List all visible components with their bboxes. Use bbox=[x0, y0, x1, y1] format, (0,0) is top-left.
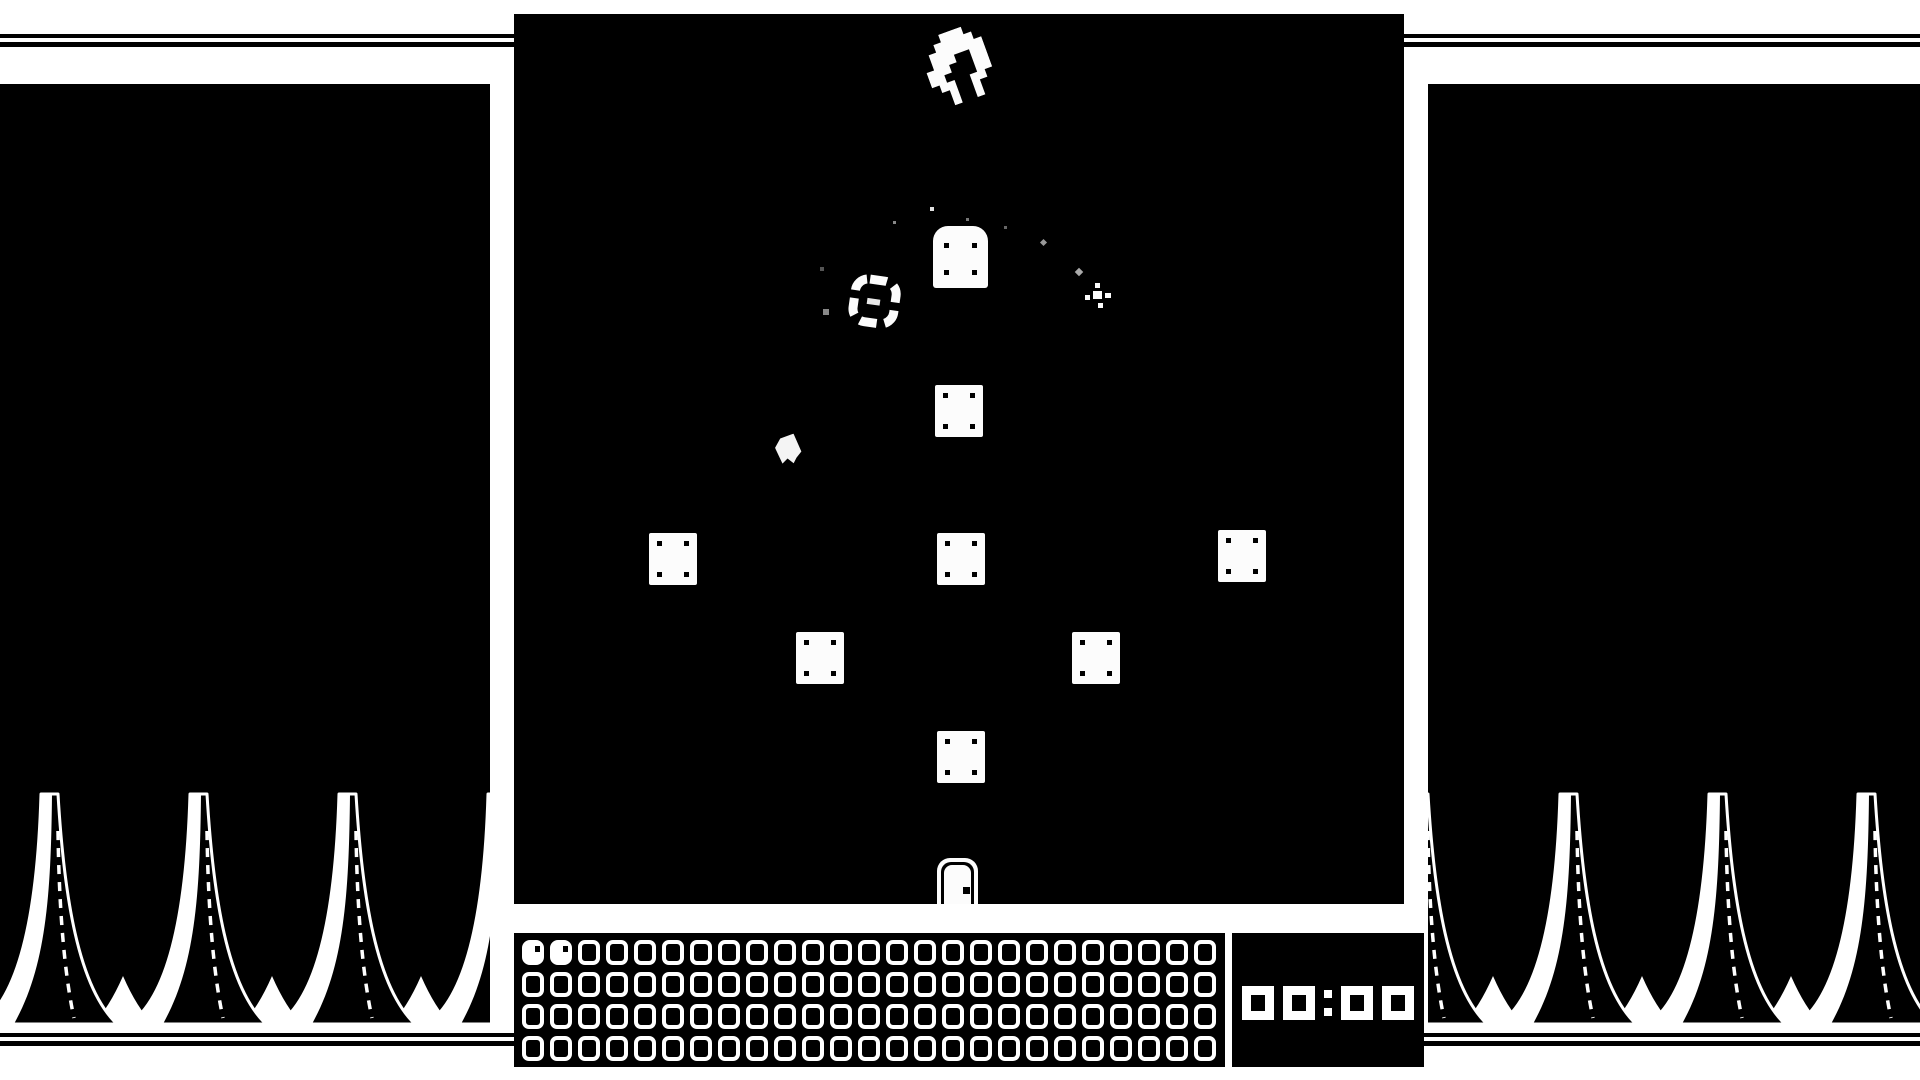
collectible-slot-empty bbox=[1194, 940, 1216, 965]
collectible-slot-empty bbox=[942, 1004, 964, 1029]
collectible-slot-empty bbox=[802, 1036, 824, 1061]
collectible-slot-empty bbox=[634, 1004, 656, 1029]
collectible-slot-empty bbox=[1026, 1036, 1048, 1061]
spike-mountains-right bbox=[1428, 786, 1920, 1032]
collectible-slot-empty bbox=[718, 1036, 740, 1061]
collectible-slot-empty bbox=[1194, 972, 1216, 997]
collectible-slot-empty bbox=[998, 1004, 1020, 1029]
collectible-slot-empty bbox=[606, 1036, 628, 1061]
collectible-slot-empty bbox=[550, 972, 572, 997]
collectible-slot-empty bbox=[914, 1004, 936, 1029]
collectible-slot-empty bbox=[522, 972, 544, 997]
collectible-slot-empty bbox=[914, 972, 936, 997]
sparkle-icon bbox=[1085, 283, 1113, 311]
debris-particle bbox=[820, 267, 824, 271]
collectible-slot-empty bbox=[578, 1036, 600, 1061]
timer-digit-0 bbox=[1341, 986, 1373, 1020]
collectible-slot-empty bbox=[830, 1004, 852, 1029]
timer-digit-0 bbox=[1283, 986, 1315, 1020]
collectible-slot-empty bbox=[1054, 940, 1076, 965]
collectible-slot-empty bbox=[690, 1036, 712, 1061]
collectible-slot-empty bbox=[662, 972, 684, 997]
plate-block bbox=[1072, 632, 1120, 684]
collectible-slot-empty bbox=[914, 1036, 936, 1061]
collectible-slot-empty bbox=[550, 1036, 572, 1061]
collectible-slot-empty bbox=[578, 940, 600, 965]
collectible-slot-empty bbox=[662, 1004, 684, 1029]
collectible-slot-empty bbox=[802, 1004, 824, 1029]
collectible-slot-empty bbox=[634, 972, 656, 997]
collectible-slot-empty bbox=[1194, 1036, 1216, 1061]
collectible-slot-empty bbox=[1026, 940, 1048, 965]
collectible-slot-empty bbox=[1082, 940, 1104, 965]
collectible-slot-empty bbox=[522, 1036, 544, 1061]
collectible-slot-empty bbox=[1026, 1004, 1048, 1029]
collectible-slot-empty bbox=[802, 972, 824, 997]
collectible-slot-empty bbox=[522, 1004, 544, 1029]
collectible-slot-empty bbox=[1166, 1004, 1188, 1029]
collectible-slot-empty bbox=[886, 972, 908, 997]
collectible-slot-empty bbox=[858, 1004, 880, 1029]
collectible-slot-empty bbox=[830, 940, 852, 965]
timer-digit-0 bbox=[1382, 986, 1414, 1020]
right-border-panel bbox=[1428, 84, 1920, 1032]
collectible-slot-empty bbox=[830, 972, 852, 997]
collectible-slot-empty bbox=[830, 1036, 852, 1061]
collectible-slot-empty bbox=[746, 940, 768, 965]
collectible-slot-empty bbox=[1166, 972, 1188, 997]
collectible-slot-empty bbox=[606, 940, 628, 965]
collectible-slot-empty bbox=[858, 940, 880, 965]
collectible-slot-empty bbox=[774, 940, 796, 965]
collectible-slot-empty bbox=[1054, 972, 1076, 997]
collectible-slot-empty bbox=[998, 972, 1020, 997]
collectible-slot-empty bbox=[774, 1004, 796, 1029]
collectible-slot-empty bbox=[998, 940, 1020, 965]
spike-mountains-left bbox=[0, 786, 490, 1032]
collectible-slot-empty bbox=[634, 940, 656, 965]
collectible-slot-empty bbox=[886, 940, 908, 965]
collectible-slot-empty bbox=[858, 1036, 880, 1061]
collectible-slot-empty bbox=[1138, 940, 1160, 965]
collectible-eye-icon bbox=[535, 946, 540, 952]
debris-particle bbox=[893, 221, 896, 224]
collectible-slot-empty bbox=[1138, 1004, 1160, 1029]
collectible-slot-empty bbox=[942, 940, 964, 965]
collectible-slot-empty bbox=[1110, 1036, 1132, 1061]
collectible-slot-empty bbox=[662, 940, 684, 965]
collectible-slot-empty bbox=[690, 972, 712, 997]
collectible-slot-empty bbox=[886, 1004, 908, 1029]
debris-particle bbox=[823, 309, 829, 315]
collectible-slot-empty bbox=[718, 972, 740, 997]
collectible-slot-empty bbox=[634, 1036, 656, 1061]
plate-block bbox=[796, 632, 844, 684]
timer-colon bbox=[1324, 990, 1332, 1016]
collectible-slot-empty bbox=[1110, 972, 1132, 997]
collectible-slot-empty bbox=[802, 940, 824, 965]
collectible-slot-empty bbox=[1110, 1004, 1132, 1029]
collectible-slot-empty bbox=[1110, 940, 1132, 965]
collectible-grid bbox=[514, 933, 1225, 1067]
collectible-slot-empty bbox=[1194, 1004, 1216, 1029]
collectible-slot-empty bbox=[578, 1004, 600, 1029]
collectible-slot-empty bbox=[1082, 1004, 1104, 1029]
debris-particle bbox=[966, 218, 969, 221]
collectible-slot-empty bbox=[1026, 972, 1048, 997]
collectible-slot-empty bbox=[690, 940, 712, 965]
plate-block bbox=[937, 533, 985, 585]
collectible-slot-empty bbox=[1054, 1004, 1076, 1029]
collectible-slot-empty bbox=[746, 1036, 768, 1061]
collectible-slot-empty bbox=[1054, 1036, 1076, 1061]
collectible-slot-empty bbox=[970, 940, 992, 965]
gravestone-block bbox=[933, 226, 988, 288]
plate-block bbox=[935, 385, 983, 437]
collectible-slot-empty bbox=[746, 1004, 768, 1029]
collectible-slot-empty bbox=[606, 1004, 628, 1029]
debris-particle bbox=[930, 207, 934, 211]
collectible-slot-empty bbox=[1082, 1036, 1104, 1061]
collectible-slot-empty bbox=[1166, 1036, 1188, 1061]
collectible-slot-empty bbox=[774, 972, 796, 997]
collectible-slot-empty bbox=[970, 1036, 992, 1061]
collectible-slot-empty bbox=[1138, 972, 1160, 997]
ring-coin-sprite bbox=[843, 269, 907, 334]
crab-creature-sprite bbox=[916, 21, 1001, 111]
collectible-slot-empty bbox=[606, 972, 628, 997]
collectible-slot-empty bbox=[970, 972, 992, 997]
timer-display bbox=[1242, 986, 1414, 1020]
collectible-slot-empty bbox=[1166, 940, 1188, 965]
collectible-slot-filled bbox=[550, 940, 572, 965]
playfield[interactable] bbox=[514, 14, 1404, 904]
timer-box bbox=[1232, 933, 1424, 1067]
plate-block bbox=[649, 533, 697, 585]
collectible-slot-filled bbox=[522, 940, 544, 965]
plate-block bbox=[1218, 530, 1266, 582]
left-border-panel bbox=[0, 84, 490, 1032]
game-screen: { "screen": { "background_color": "#ffff… bbox=[0, 0, 1920, 1080]
collectible-slot-empty bbox=[690, 1004, 712, 1029]
door-knob-icon bbox=[963, 887, 970, 894]
collectible-slot-empty bbox=[1138, 1036, 1160, 1061]
timer-digit-0 bbox=[1242, 986, 1274, 1020]
collectible-slot-empty bbox=[942, 1036, 964, 1061]
ghost-blob-sprite bbox=[773, 433, 805, 470]
collectible-slot-empty bbox=[886, 1036, 908, 1061]
collectible-slot-empty bbox=[942, 972, 964, 997]
collectible-slot-empty bbox=[746, 972, 768, 997]
debris-particle bbox=[1040, 239, 1047, 246]
collectible-slot-empty bbox=[550, 1004, 572, 1029]
collectible-slot-empty bbox=[970, 1004, 992, 1029]
collectible-eye-icon bbox=[563, 946, 568, 952]
collectible-slot-empty bbox=[774, 1036, 796, 1061]
collectible-slot-empty bbox=[858, 972, 880, 997]
debris-particle bbox=[1075, 268, 1083, 276]
collectible-slot-empty bbox=[998, 1036, 1020, 1061]
collectible-slot-empty bbox=[578, 972, 600, 997]
collectible-slot-empty bbox=[718, 940, 740, 965]
collectible-slot-empty bbox=[914, 940, 936, 965]
collectible-slot-empty bbox=[662, 1036, 684, 1061]
bottom-hud bbox=[514, 933, 1424, 1067]
plate-block bbox=[937, 731, 985, 783]
collectible-slot-empty bbox=[1082, 972, 1104, 997]
collectible-slot-empty bbox=[718, 1004, 740, 1029]
debris-particle bbox=[1004, 226, 1007, 229]
door bbox=[937, 858, 978, 904]
